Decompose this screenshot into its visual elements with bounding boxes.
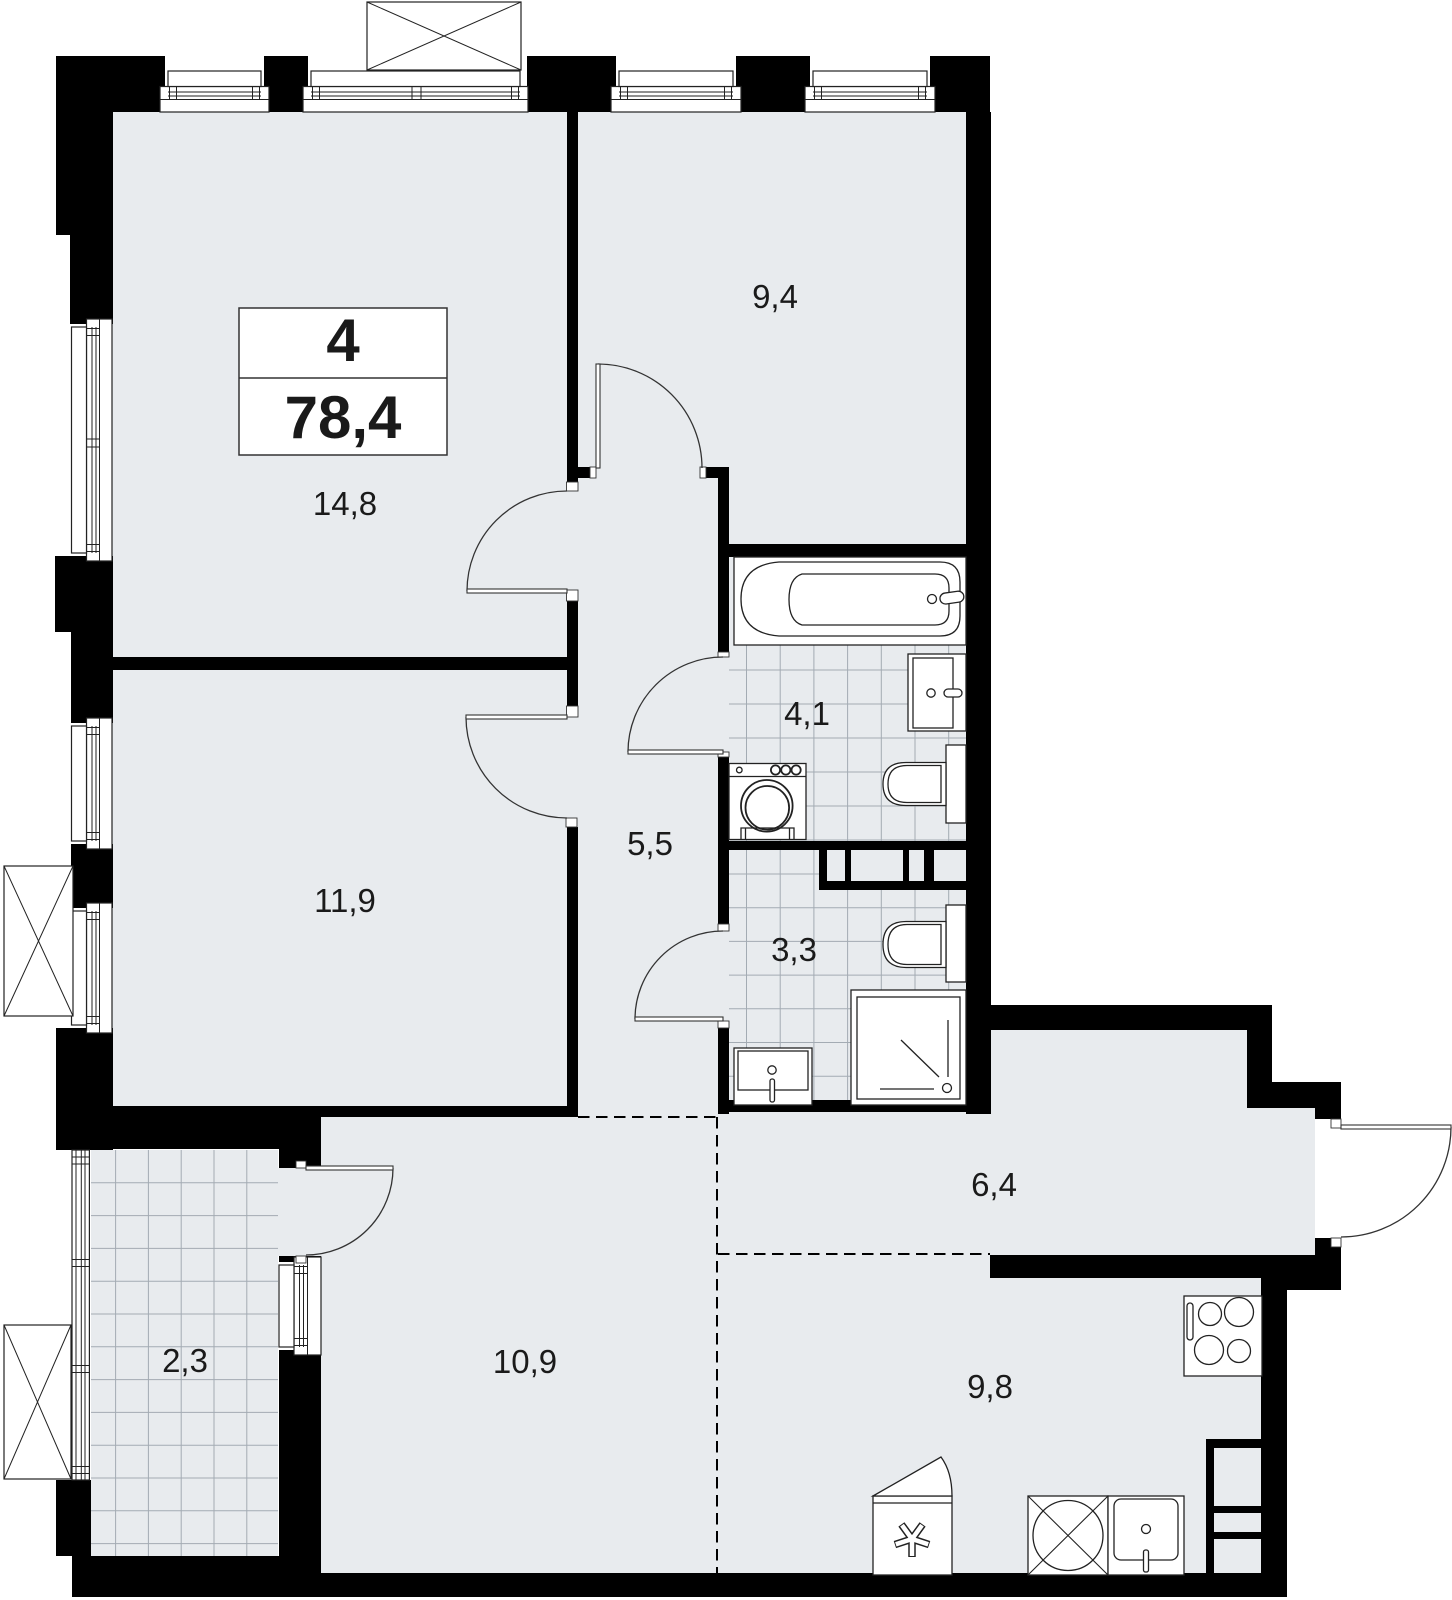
- svg-text:2,3: 2,3: [162, 1342, 208, 1379]
- svg-text:78,4: 78,4: [285, 384, 402, 451]
- svg-text:6,4: 6,4: [971, 1166, 1017, 1203]
- svg-text:14,8: 14,8: [313, 485, 377, 522]
- svg-text:9,4: 9,4: [752, 278, 798, 315]
- svg-text:9,8: 9,8: [967, 1368, 1013, 1405]
- svg-text:4,1: 4,1: [784, 695, 830, 732]
- svg-text:11,9: 11,9: [314, 882, 376, 919]
- svg-text:5,5: 5,5: [627, 825, 673, 862]
- svg-text:4: 4: [326, 307, 360, 374]
- svg-text:3,3: 3,3: [771, 931, 817, 968]
- svg-text:10,9: 10,9: [493, 1343, 557, 1380]
